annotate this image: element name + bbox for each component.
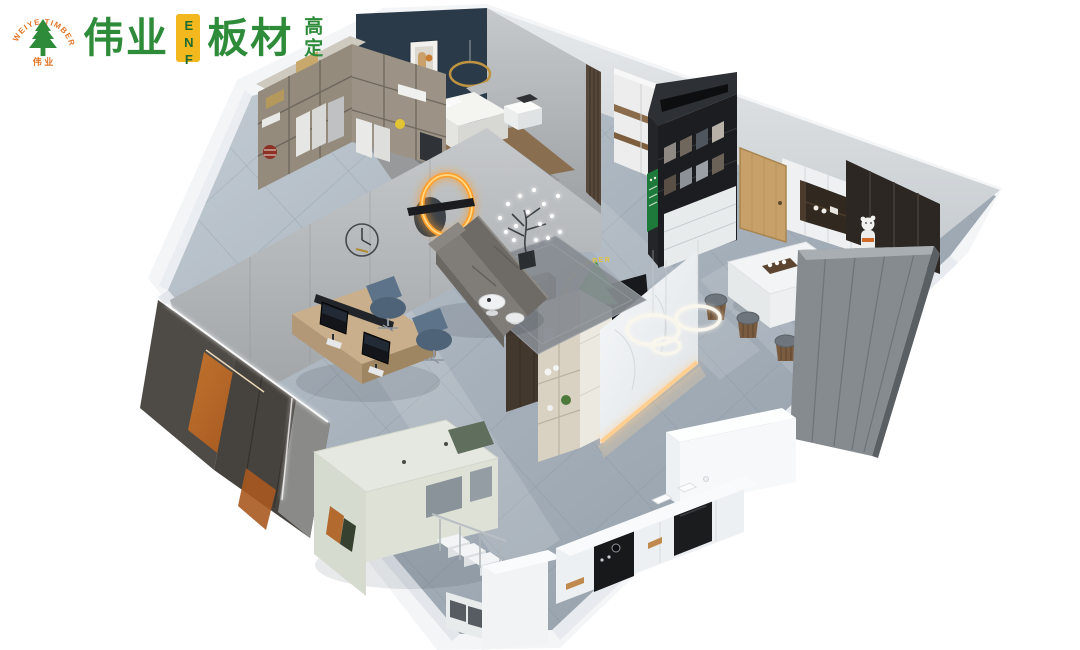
brand-tagline: 高定	[302, 16, 321, 60]
brand-product: 板材	[207, 18, 293, 59]
panel-sample-rack	[647, 72, 737, 268]
brand-logo: WEIYE TIMBER 伟 业 伟业 ENF 板材 高定	[10, 8, 321, 68]
brand-name: 伟业	[83, 18, 169, 59]
gray-partition-wall	[790, 246, 940, 458]
loft-bed	[314, 420, 505, 596]
door-handle	[778, 201, 782, 205]
logo-tree-icon: WEIYE TIMBER 伟 业	[10, 8, 76, 68]
enf-badge: ENF	[176, 14, 200, 62]
logo-tree-caption: 伟 业	[33, 56, 54, 67]
green-poster	[647, 168, 659, 232]
yellow-teapot	[395, 119, 405, 129]
scene: WEIYE TIMBER	[0, 0, 1080, 650]
showroom-render: WEIYE TIMBER 伟 业 伟业 ENF 板材 高定	[0, 0, 1080, 650]
